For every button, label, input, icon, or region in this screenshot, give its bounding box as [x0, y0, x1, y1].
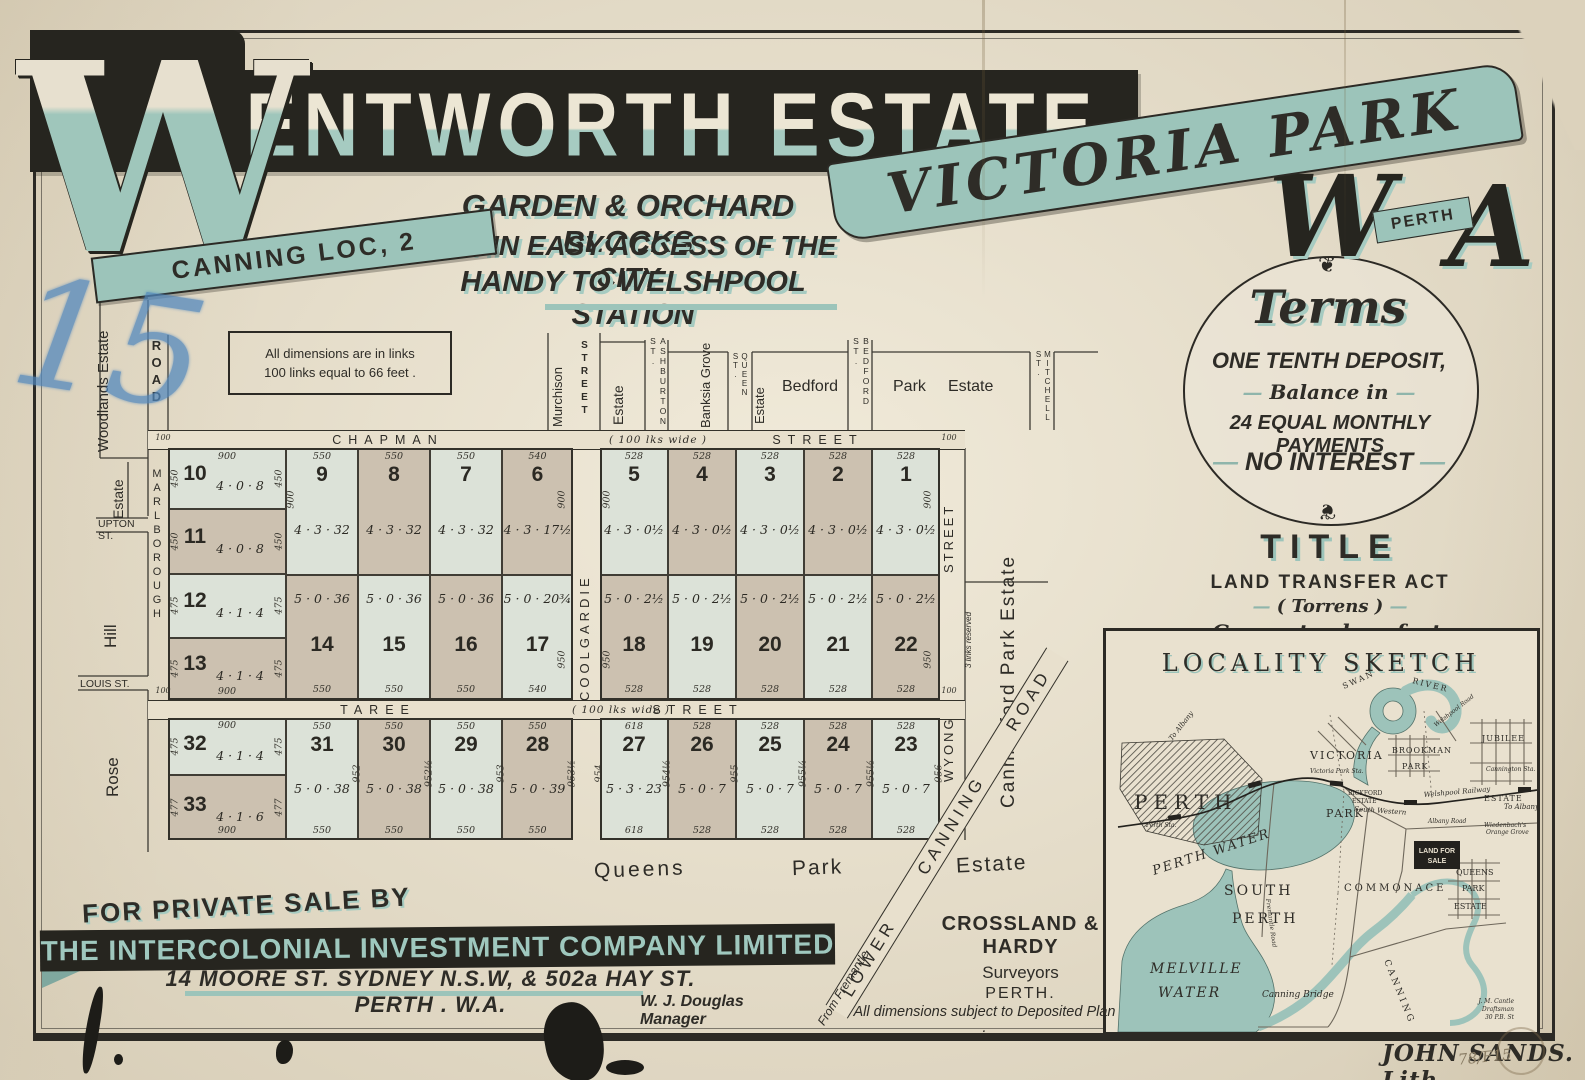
- murchison-street-label: STREET: [579, 340, 590, 428]
- block-depth: 900: [286, 487, 297, 513]
- chapman-street-band: CHAPMAN ( 100 lks wide ) STREET: [148, 430, 965, 450]
- lot-dimension: 550: [286, 451, 358, 462]
- torrens-text: ( Torrens ): [1277, 596, 1384, 617]
- lot-number: 9: [286, 463, 358, 487]
- block-depth: 952: [352, 759, 363, 789]
- block-depth: 953: [496, 759, 507, 789]
- terms-balance-text: Balance in: [1270, 380, 1389, 404]
- estate-upton-label: Estate: [110, 455, 126, 519]
- melville-label: MELVILLE: [1149, 961, 1243, 977]
- lot-dimension: 550: [502, 825, 573, 836]
- albany-road-label: Albany Road: [1427, 818, 1467, 825]
- to-albany-label-1: To Albany: [1167, 709, 1195, 742]
- lot-number: 28: [502, 733, 573, 757]
- lot-dimension: 528: [600, 451, 668, 462]
- ornament-bottom-icon: ❦: [1318, 498, 1336, 524]
- lot-dimension: 528: [872, 451, 940, 462]
- lot-number: 16: [430, 633, 502, 657]
- marlborough-label: MARLBOROUGH: [151, 468, 163, 672]
- chapman-street-label: STREET: [738, 433, 898, 447]
- lot-dimension: 528: [804, 451, 872, 462]
- address-rule: [185, 991, 643, 996]
- lot-number: 6: [502, 463, 573, 487]
- lot-number: 15: [358, 633, 430, 657]
- queen-st-label: QUEEN ST.: [731, 352, 749, 426]
- lot-dimension: 550: [358, 825, 430, 836]
- title-heading: TITLE: [1200, 528, 1460, 567]
- lot-dimension: 450: [170, 465, 181, 491]
- draftsman-label-2: Draftsman: [1481, 1006, 1514, 1013]
- lot-dimension: 900: [168, 720, 286, 731]
- upton-st-label: UPTON ST.: [98, 518, 150, 542]
- lot-dimension: 528: [668, 721, 736, 732]
- lot-dimension: 550: [286, 684, 358, 695]
- handwritten-number: 15: [2, 244, 218, 446]
- south-label: SOUTH: [1224, 883, 1293, 899]
- terms-interest-text: NO INTEREST: [1245, 448, 1413, 476]
- lot-dimension: 450: [170, 528, 181, 554]
- terms-line-balance: — Balance in —: [1198, 380, 1460, 404]
- dash-icon: —: [1252, 596, 1270, 617]
- dimension-note: All dimensions are in links 100 links eq…: [228, 331, 452, 395]
- lot-area: 5 · 0 · 20¾: [494, 591, 581, 606]
- lot-area: 4 · 1 · 4: [200, 668, 280, 683]
- lot-number: 8: [358, 463, 430, 487]
- lot-dimension: 550: [358, 684, 430, 695]
- rose-label: Rose: [103, 705, 123, 797]
- lot-dimension: 618: [600, 721, 668, 732]
- poster-page: ENTWORTH ESTATE W CANNING LOC, 2 GARDEN …: [0, 0, 1585, 1080]
- library-stamp-icon: [1497, 1027, 1545, 1075]
- lot-area: 4 · 1 · 4: [200, 748, 280, 763]
- block-depth: 900: [602, 487, 613, 513]
- jubilee-label: JUBILEE: [1481, 734, 1525, 743]
- disclaimer: All dimensions subject to Deposited Plan…: [852, 1004, 1117, 1036]
- lot-dimension: 550: [286, 721, 358, 732]
- dash-icon: —: [1390, 596, 1408, 617]
- street-width-tick: 100: [152, 686, 174, 695]
- dash-icon: —: [1395, 380, 1415, 404]
- paper-tear: [1492, 0, 1585, 150]
- lot-dimension: 477: [274, 794, 285, 820]
- queens-park-label-3: ESTATE: [1454, 902, 1487, 911]
- lot-area: 4 · 3 · 17½: [494, 522, 581, 537]
- canning-river-label: CANNING: [1381, 958, 1416, 1026]
- orange-grove-label: Orange Grove: [1486, 829, 1529, 836]
- lot-dimension: 550: [430, 684, 502, 695]
- surveyors-city: PERTH.: [928, 985, 1113, 1003]
- lot-number: 3: [736, 463, 804, 487]
- draftsman-label-3: 30 P.B. St: [1485, 1014, 1515, 1021]
- lot-dimension: 550: [358, 721, 430, 732]
- lot-dimension: 550: [358, 451, 430, 462]
- wyong-label: WYONG: [941, 632, 956, 782]
- lot-dimension: 550: [502, 721, 573, 732]
- lot-dimension: 528: [668, 451, 736, 462]
- block-depth: 955½: [866, 759, 877, 789]
- lot-dimension: 528: [668, 684, 736, 695]
- lot-dimension: 900: [168, 686, 286, 697]
- lot-dimension: 475: [170, 593, 181, 619]
- canning-bridge-label: Canning Bridge: [1262, 990, 1334, 1000]
- lot-area: 4 · 3 · 0½: [864, 522, 948, 537]
- lot-number: 31: [286, 733, 358, 757]
- lot-area: 4 · 0 · 8: [200, 541, 280, 556]
- lot-dimension: 900: [168, 451, 286, 462]
- estate-bedford-label: Estate: [948, 378, 1036, 396]
- block-depth: 954: [594, 759, 605, 789]
- block-depth: 954½: [662, 759, 673, 789]
- subdivision-plan: 104 · 0 · 8450450114 · 0 · 8450450124 · …: [168, 448, 965, 840]
- lot-area: 4 · 1 · 4: [200, 605, 280, 620]
- block-depth: 950: [557, 647, 568, 673]
- chapman-label: CHAPMAN: [288, 433, 488, 447]
- lot-number: 20: [736, 633, 804, 657]
- lot-dimension: 618: [600, 825, 668, 836]
- lot-dimension: 528: [736, 684, 804, 695]
- lot-area: 4 · 0 · 8: [200, 478, 280, 493]
- dash-icon: —: [1243, 380, 1263, 404]
- ornament-top-icon: ❦: [1318, 252, 1336, 278]
- coolgardie-label: COOLGARDIE: [577, 495, 592, 701]
- melville-water-label: WATER: [1158, 985, 1221, 1001]
- queens-park-label-1: QUEENS: [1456, 868, 1493, 877]
- locality-title: LOCALITY SKETCH: [1162, 649, 1480, 677]
- subtitle-rule: [545, 304, 837, 310]
- block-depth: 955¼: [798, 759, 809, 789]
- lot-area: 5 · 0 · 2½: [864, 591, 948, 606]
- lot-number: 27: [600, 733, 668, 757]
- queens-park-label: Park: [792, 855, 855, 881]
- ink-stain-icon: [276, 1040, 293, 1064]
- block-depth: 950: [923, 647, 934, 673]
- lot-dimension: 475: [274, 656, 285, 682]
- lot-number: 19: [668, 633, 736, 657]
- bickford-label: BICKFORD: [1348, 790, 1382, 797]
- brookman-park-label: PARK: [1402, 762, 1428, 771]
- lot-number: 24: [804, 733, 872, 757]
- company-ribbon: THE INTERCOLONIAL INVESTMENT COMPANY LIM…: [40, 924, 835, 972]
- lot-number: 1: [872, 463, 940, 487]
- park-label: Park: [893, 378, 941, 396]
- lot-dimension: 475: [274, 733, 285, 759]
- lot-dimension: 528: [736, 721, 804, 732]
- bickford-estate-label: ESTATE: [1352, 798, 1377, 805]
- victoria-label: VICTORIA: [1309, 749, 1384, 762]
- estate-murchison-label: Estate: [610, 345, 626, 425]
- lot-dimension: 528: [600, 684, 668, 695]
- wiedenbach-label: Wiedenbach's: [1484, 822, 1526, 829]
- lot-number: 4: [668, 463, 736, 487]
- note-line-2: 100 links equal to 66 feet .: [264, 363, 416, 383]
- lot-dimension: 528: [804, 825, 872, 836]
- lot-dimension: 550: [430, 451, 502, 462]
- queens-label: Queens: [594, 856, 690, 883]
- victoria-sta-label: Victoria Park Sta.: [1310, 768, 1364, 775]
- queens-park-label-2: PARK: [1462, 884, 1485, 893]
- torrens: — ( Torrens ) —: [1200, 596, 1460, 617]
- commonage-label: COMMONACE: [1344, 883, 1446, 894]
- ink-stain-icon: [606, 1060, 644, 1075]
- lot-number: 25: [736, 733, 804, 757]
- lot-dimension: 475: [170, 733, 181, 759]
- terms-line-interest: — NO INTEREST —: [1198, 448, 1460, 477]
- lot-dimension: 528: [804, 684, 872, 695]
- bedford-label: Bedford: [782, 378, 852, 396]
- locality-map: LAND FOR SALE LOCALITY SKETCH LOCALITY S…: [1106, 631, 1537, 1032]
- lot-dimension: 540: [502, 451, 573, 462]
- perth-sta-label: Perth Sta.: [1145, 822, 1176, 829]
- brookman-label: BROOKMAN: [1392, 746, 1452, 755]
- block-depth: 900: [923, 487, 934, 513]
- lot-dimension: 528: [872, 684, 940, 695]
- block-depth: 900: [557, 487, 568, 513]
- wyong-street-label: STREET: [941, 455, 956, 573]
- cannington-sta-label: Cannington Sta.: [1486, 766, 1535, 773]
- lot-number: 2: [804, 463, 872, 487]
- lot-number: 23: [872, 733, 940, 757]
- lot-dimension: 900: [168, 825, 286, 836]
- lot-number: 21: [804, 633, 872, 657]
- lot-number: 29: [430, 733, 502, 757]
- terms-line-deposit: ONE TENTH DEPOSIT,: [1198, 348, 1460, 374]
- draftsman-label-1: J. M. Cantle: [1476, 998, 1514, 1005]
- block-depth: 955: [730, 759, 741, 789]
- land-for-sale-1: LAND FOR: [1419, 848, 1455, 855]
- locality-sketch-panel: LAND FOR SALE LOCALITY SKETCH LOCALITY S…: [1103, 628, 1540, 1035]
- murchison-label: Murchison: [550, 335, 565, 427]
- lot-dimension: 477: [170, 794, 181, 820]
- lot-dimension: 475: [170, 656, 181, 682]
- dash-icon: —: [1420, 448, 1445, 476]
- to-albany-label-2: To Albany: [1504, 803, 1537, 811]
- ashburton-st-label: ASHBURTON ST.: [648, 336, 668, 428]
- lot-number: 7: [430, 463, 502, 487]
- lot-area: 4 · 1 · 6: [200, 809, 280, 824]
- subtitle-3: HANDY TO WELSHPOOL STATION: [418, 266, 848, 332]
- lot-dimension: 528: [872, 721, 940, 732]
- jubilee-estate-label: ESTATE: [1484, 794, 1523, 803]
- surveyors-name: CROSSLAND & HARDY: [928, 913, 1113, 959]
- mitchell-st-label: MITCHELL ST.: [1034, 350, 1052, 428]
- terms-heading: Terms: [1228, 280, 1428, 334]
- lot-number: 26: [668, 733, 736, 757]
- lot-dimension: 450: [274, 465, 285, 491]
- chapman-width-note: ( 100 lks wide ): [593, 434, 723, 446]
- lot-number: 30: [358, 733, 430, 757]
- note-line-1: All dimensions are in links: [265, 344, 415, 364]
- lot-dimension: 550: [430, 825, 502, 836]
- lot-number: 5: [600, 463, 668, 487]
- bedford-st-label: BEDFORD ST.: [851, 336, 871, 428]
- louis-st-label: LOUIS ST.: [80, 678, 148, 690]
- estate-queen-label: Estate: [752, 350, 767, 424]
- land-for-sale-2: SALE: [1428, 858, 1447, 865]
- block-depth: 953½: [567, 759, 578, 789]
- lot-dimension: 540: [502, 684, 573, 695]
- land-transfer-act: LAND TRANSFER ACT: [1200, 572, 1460, 594]
- dash-icon: —: [1213, 448, 1238, 476]
- banksia-grove-label: Banksia Grove: [698, 328, 713, 428]
- reserve-note: 3 links reserved: [964, 540, 973, 668]
- lot-dimension: 550: [286, 825, 358, 836]
- lot-number: 14: [286, 633, 358, 657]
- south-perth-label: PERTH: [1232, 911, 1298, 927]
- block-depth: 952½: [424, 759, 435, 789]
- lot-dimension: 528: [804, 721, 872, 732]
- lot-dimension: 528: [668, 825, 736, 836]
- ink-stain-icon: [114, 1054, 123, 1065]
- perth-label: PERTH: [1134, 790, 1238, 814]
- manager-label: W. J. Douglas Manager: [640, 993, 810, 1029]
- surveyors-block: CROSSLAND & HARDY Surveyors PERTH.: [928, 913, 1113, 1003]
- street-width-tick: 100: [938, 433, 960, 442]
- block-depth: 950: [602, 647, 613, 673]
- lot-dimension: 550: [430, 721, 502, 732]
- surveyors-role: Surveyors: [928, 963, 1113, 983]
- lot-dimension: 528: [736, 451, 804, 462]
- hill-label: Hill: [101, 552, 121, 648]
- lot-dimension: 528: [736, 825, 804, 836]
